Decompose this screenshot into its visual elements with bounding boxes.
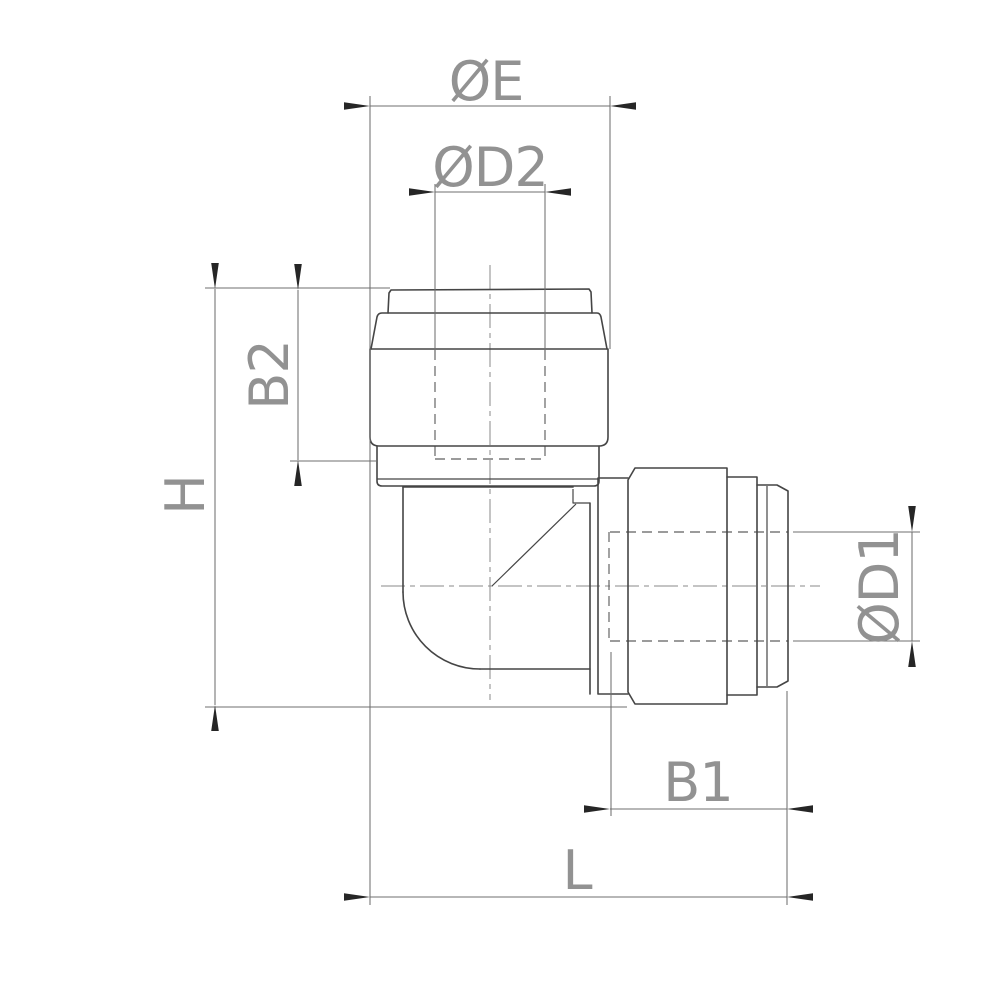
- label-dia-e: ØE: [449, 50, 524, 113]
- dimension-b1: B1: [610, 652, 787, 905]
- label-l: L: [562, 839, 592, 902]
- label-dia-d2: ØD2: [432, 136, 547, 199]
- elbow-chamfer-diagonal: [492, 504, 576, 586]
- dimension-dia-d1: ØD1: [793, 529, 920, 644]
- vertical-port-collet-ring: [371, 313, 607, 349]
- dimension-b2: B2: [205, 288, 390, 461]
- drawing-canvas: ØE ØD2 B2 H ØD1 B1 L: [0, 0, 1000, 1000]
- vertical-port-lower-ring: [377, 446, 599, 486]
- center-lines: [381, 265, 820, 700]
- hidden-bore-lines: [435, 350, 788, 641]
- elbow-corner-step-detail: [573, 489, 590, 503]
- elbow-body: [403, 487, 590, 694]
- label-b1: B1: [663, 751, 732, 814]
- drawing-sheet: ØE ØD2 B2 H ØD1 B1 L: [0, 0, 1000, 1000]
- vertical-port-body: [370, 349, 608, 446]
- dimension-l: L: [370, 839, 787, 902]
- dimension-h: H: [154, 289, 627, 707]
- label-b2: B2: [238, 340, 301, 409]
- vertical-port: [370, 289, 608, 486]
- label-h: H: [154, 475, 217, 515]
- elbow-corner-arc: [403, 592, 480, 669]
- label-dia-d1: ØD1: [848, 529, 911, 644]
